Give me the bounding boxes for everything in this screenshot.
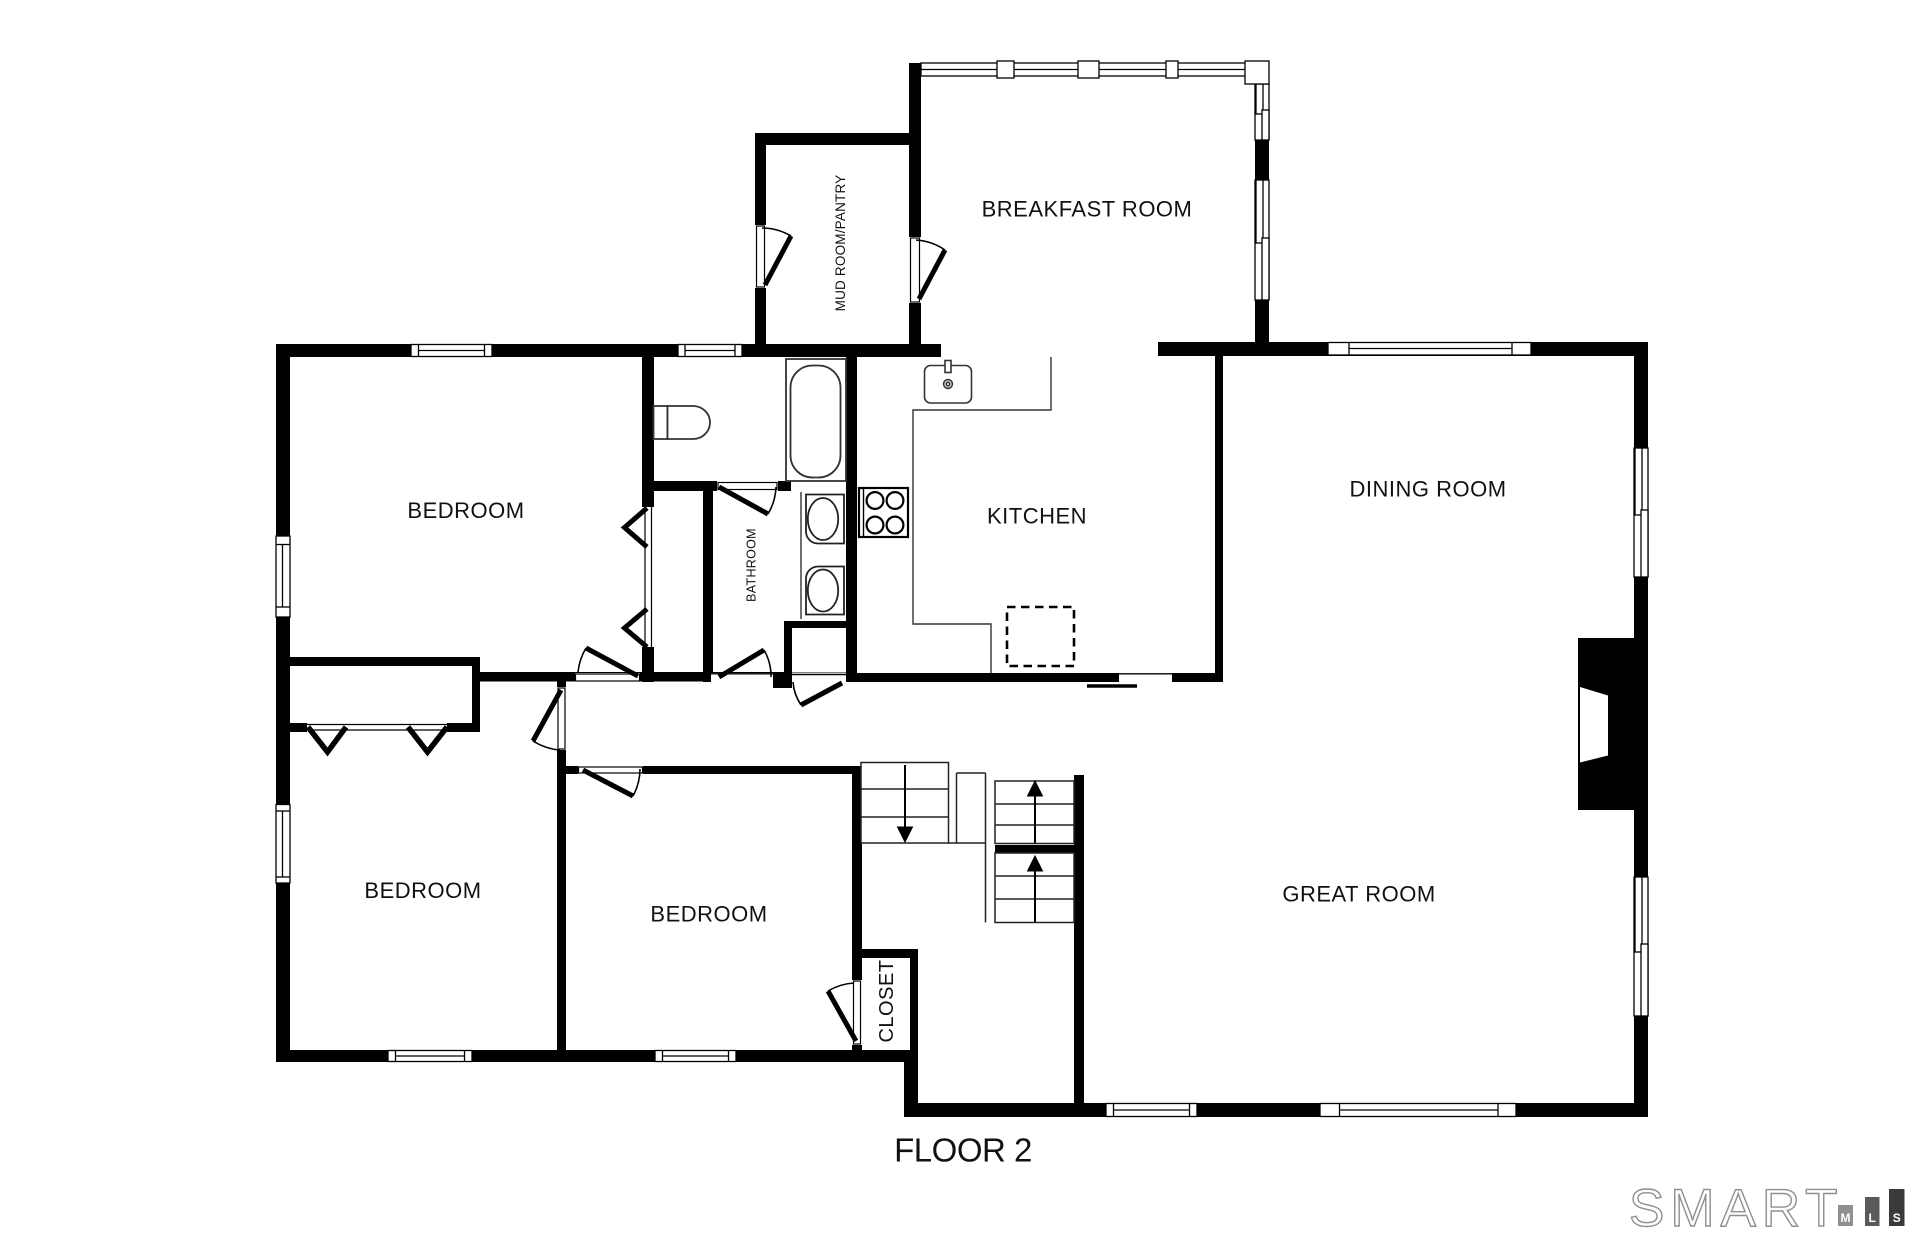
svg-text:BREAKFAST ROOM: BREAKFAST ROOM	[982, 197, 1193, 222]
svg-text:BATHROOM: BATHROOM	[745, 528, 759, 602]
svg-text:FLOOR 2: FLOOR 2	[894, 1132, 1032, 1169]
svg-text:KITCHEN: KITCHEN	[987, 504, 1087, 529]
svg-text:L: L	[1869, 1211, 1876, 1225]
svg-text:BEDROOM: BEDROOM	[650, 902, 767, 927]
svg-text:M: M	[1841, 1211, 1851, 1225]
svg-text:DINING ROOM: DINING ROOM	[1349, 477, 1506, 502]
svg-text:S: S	[1893, 1211, 1901, 1225]
svg-text:BEDROOM: BEDROOM	[407, 498, 524, 523]
svg-text:MUD ROOM/PANTRY: MUD ROOM/PANTRY	[833, 175, 848, 312]
svg-text:SMART: SMART	[1629, 1179, 1844, 1238]
svg-text:GREAT ROOM: GREAT ROOM	[1282, 882, 1435, 907]
svg-text:BEDROOM: BEDROOM	[364, 878, 481, 903]
svg-text:CLOSET: CLOSET	[876, 959, 898, 1042]
